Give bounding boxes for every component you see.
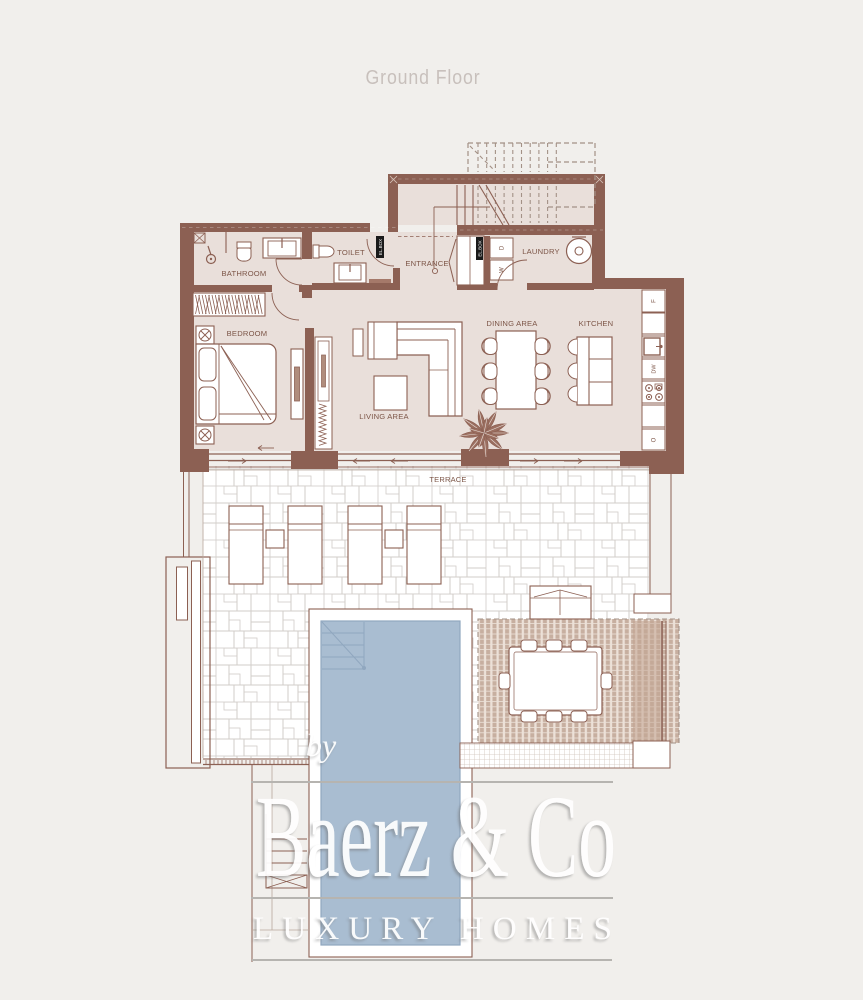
svg-text:Ground Floor: Ground Floor <box>366 67 481 89</box>
svg-text:BEDROOM: BEDROOM <box>227 329 268 338</box>
svg-text:ENTRANCE: ENTRANCE <box>405 259 448 268</box>
svg-text:EL.BOX: EL.BOX <box>378 239 383 255</box>
svg-text:DW: DW <box>652 364 658 374</box>
svg-text:DINING AREA: DINING AREA <box>486 319 538 328</box>
svg-text:F: F <box>652 299 658 303</box>
svg-text:O: O <box>652 437 658 442</box>
svg-text:TERRACE: TERRACE <box>429 475 466 484</box>
svg-text:D: D <box>500 245 506 250</box>
svg-text:TOILET: TOILET <box>337 248 365 257</box>
svg-text:Baerz & Co: Baerz & Co <box>256 771 616 902</box>
svg-text:LAUNDRY: LAUNDRY <box>522 247 560 256</box>
svg-text:EL.BOX: EL.BOX <box>478 240 483 256</box>
svg-text:BATHROOM: BATHROOM <box>222 269 267 278</box>
svg-text:by: by <box>306 727 337 763</box>
svg-text:KITCHEN: KITCHEN <box>579 319 614 328</box>
svg-text:LIVING AREA: LIVING AREA <box>359 412 409 421</box>
